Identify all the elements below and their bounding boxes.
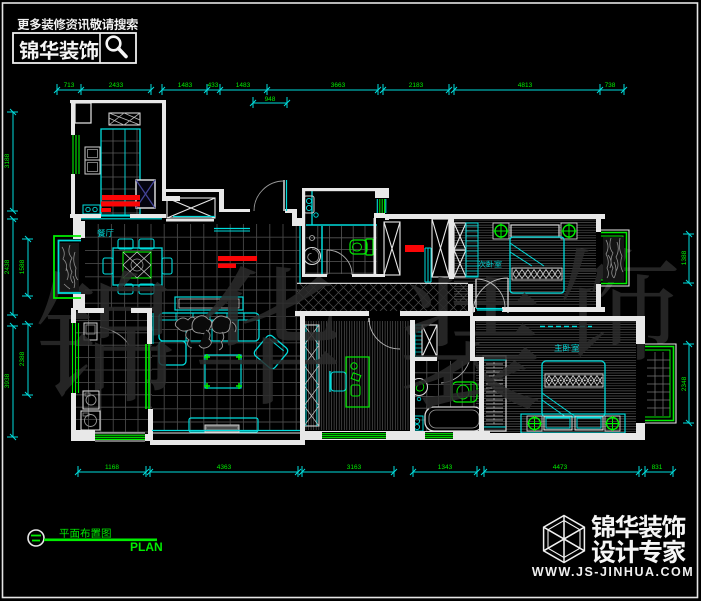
svg-text:1168: 1168 xyxy=(105,464,119,471)
svg-text:1483: 1483 xyxy=(236,82,251,89)
svg-text:3163: 3163 xyxy=(347,464,362,471)
svg-text:2433: 2433 xyxy=(109,82,124,89)
svg-text:4363: 4363 xyxy=(217,464,232,471)
svg-text:3938: 3938 xyxy=(4,373,11,388)
svg-text:738: 738 xyxy=(605,82,616,89)
svg-text:2183: 2183 xyxy=(409,82,424,89)
svg-text:WWW.JS-JINHUA.COM: WWW.JS-JINHUA.COM xyxy=(532,565,694,579)
svg-text:1343: 1343 xyxy=(438,464,453,471)
svg-text:4473: 4473 xyxy=(553,464,568,471)
svg-text:1483: 1483 xyxy=(178,82,193,89)
svg-text:831: 831 xyxy=(652,464,663,471)
svg-text:2348: 2348 xyxy=(681,376,688,391)
svg-text:PLAN: PLAN xyxy=(130,540,163,554)
svg-text:4813: 4813 xyxy=(518,82,533,89)
svg-text:713: 713 xyxy=(64,82,75,89)
svg-text:1388: 1388 xyxy=(681,250,688,265)
svg-text:1588: 1588 xyxy=(19,259,26,274)
svg-text:2438: 2438 xyxy=(4,259,11,274)
svg-text:3663: 3663 xyxy=(331,82,346,89)
svg-text:948: 948 xyxy=(265,96,276,103)
svg-text:3188: 3188 xyxy=(4,153,11,168)
svg-text:433: 433 xyxy=(208,82,219,89)
svg-text:2388: 2388 xyxy=(19,351,26,366)
